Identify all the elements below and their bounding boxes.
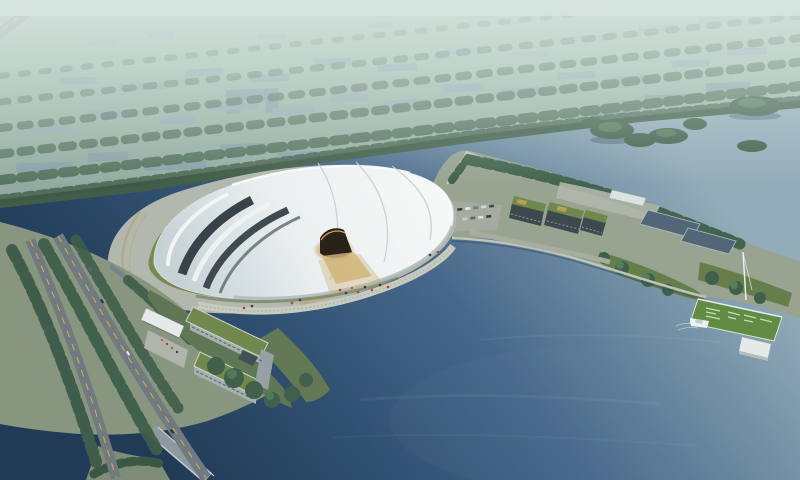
global-tint xyxy=(0,0,800,480)
aerial-rendering xyxy=(0,0,800,480)
rendering-canvas xyxy=(0,0,800,480)
